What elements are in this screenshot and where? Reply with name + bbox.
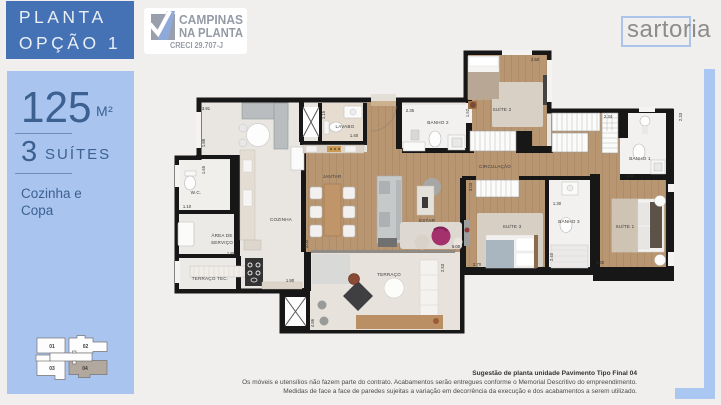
svg-text:1.80: 1.80	[227, 251, 236, 256]
svg-text:03: 03	[49, 366, 55, 372]
svg-text:SUÍTE 2: SUÍTE 2	[493, 106, 512, 112]
svg-text:1.30: 1.30	[553, 201, 562, 206]
svg-text:CAMPINAS: CAMPINAS	[179, 13, 243, 27]
svg-text:2.70: 2.70	[473, 262, 482, 267]
svg-text:2.60: 2.60	[596, 260, 605, 265]
svg-text:TERRAÇO TEC.: TERRAÇO TEC.	[192, 276, 229, 281]
svg-text:3.00: 3.00	[304, 239, 309, 248]
svg-text:LAVABO: LAVABO	[336, 124, 355, 129]
svg-text:2.53: 2.53	[440, 263, 445, 272]
svg-text:2.50: 2.50	[531, 57, 540, 62]
svg-text:2.35: 2.35	[406, 108, 415, 113]
svg-text:2.33: 2.33	[678, 112, 683, 121]
svg-text:1.90: 1.90	[286, 278, 295, 283]
svg-text:CRECI 29.707-J: CRECI 29.707-J	[170, 41, 223, 50]
svg-text:BANHO 3: BANHO 3	[558, 219, 580, 224]
svg-text:1.50: 1.50	[626, 173, 635, 178]
svg-text:2.34: 2.34	[604, 114, 613, 119]
svg-text:NA PLANTA: NA PLANTA	[179, 26, 243, 40]
svg-text:01: 01	[49, 344, 55, 350]
svg-text:COZINHA: COZINHA	[270, 217, 293, 222]
svg-text:SERVIÇO: SERVIÇO	[211, 240, 233, 245]
svg-text:4.86: 4.86	[310, 318, 315, 327]
svg-text:SUÍTE 3: SUÍTE 3	[503, 223, 522, 229]
svg-text:1.88: 1.88	[201, 138, 206, 147]
svg-text:2.40: 2.40	[549, 252, 554, 261]
svg-text:ESTAR: ESTAR	[419, 218, 435, 223]
svg-text:SUÍTE 1: SUÍTE 1	[616, 223, 635, 229]
svg-text:3.91: 3.91	[202, 106, 211, 111]
svg-text:BANHO 1: BANHO 1	[629, 156, 651, 161]
svg-text:04: 04	[82, 366, 88, 372]
svg-text:BANHO 2: BANHO 2	[427, 120, 449, 125]
svg-text:W.C.: W.C.	[191, 190, 202, 195]
svg-text:ÁREA DE: ÁREA DE	[211, 232, 232, 238]
svg-text:1.10: 1.10	[183, 204, 192, 209]
svg-text:JANTAR: JANTAR	[323, 174, 342, 179]
svg-text:02: 02	[83, 344, 89, 350]
svg-text:1.15: 1.15	[321, 110, 326, 119]
svg-text:1.40: 1.40	[350, 133, 359, 138]
svg-text:TERRAÇO: TERRAÇO	[377, 272, 401, 277]
svg-text:1.52: 1.52	[465, 108, 470, 117]
svg-text:CIRCULAÇÃO: CIRCULAÇÃO	[479, 163, 511, 169]
svg-text:3.03: 3.03	[468, 182, 473, 191]
svg-text:1.65: 1.65	[201, 165, 206, 174]
svg-text:5.00: 5.00	[452, 244, 461, 249]
